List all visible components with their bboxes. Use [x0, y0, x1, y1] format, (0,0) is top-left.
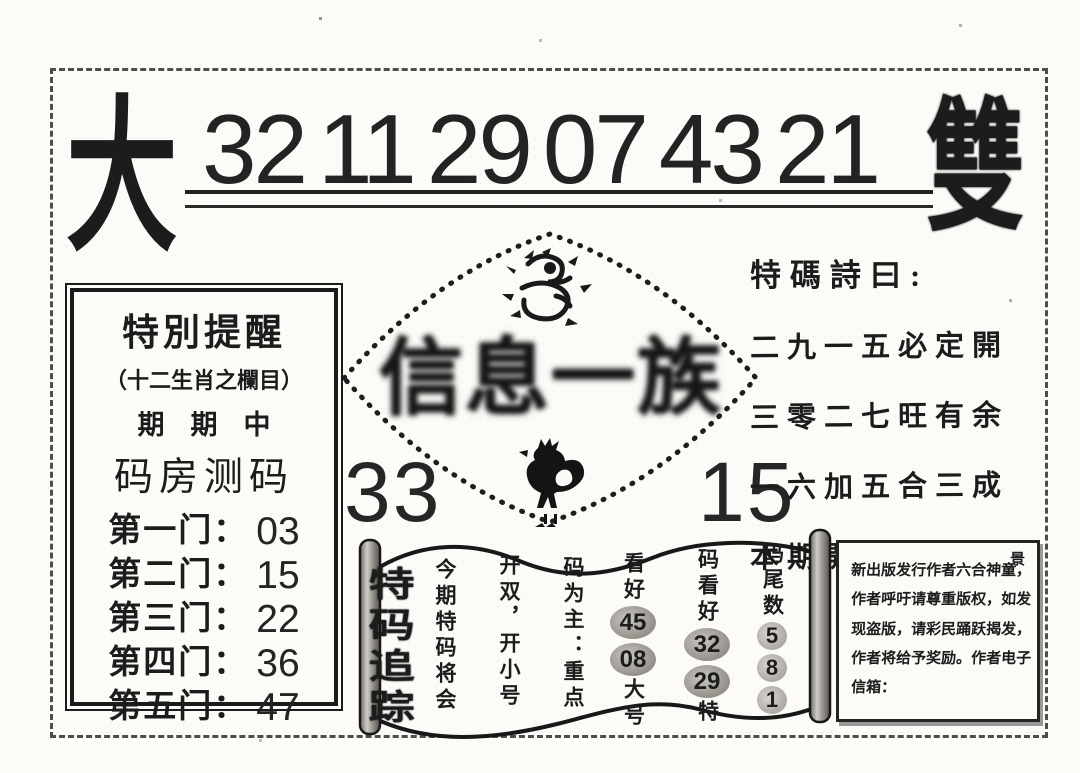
special-alert-box: 特別提醒 （十二生肖之欄目） 期期中 码房测码 第一门： 03 第二门： 15 …: [70, 288, 338, 706]
door-list: 第一门： 03 第二门： 15 第三门： 22 第四门： 36 第五门： 47: [76, 512, 332, 727]
scroll-column: 码看好 32 29 特: [682, 548, 732, 726]
door-number: 22: [256, 600, 299, 639]
scroll-column-text: 码看好: [697, 548, 718, 626]
door-label: 第二门：: [108, 559, 248, 592]
door-label: 第四门：: [108, 647, 248, 680]
poem-line: 二九一五必定開: [750, 321, 1042, 366]
top-number: 21: [775, 100, 878, 198]
top-number: 43: [659, 100, 762, 198]
top-number: 29: [427, 100, 530, 198]
picked-number-chip: 29: [684, 665, 730, 698]
scroll-column: 今期特码将会: [434, 558, 455, 714]
top-number: 11: [318, 100, 414, 198]
picked-number-chip: 08: [610, 643, 656, 676]
photocopy-noise: [0, 0, 1, 1]
brand-title: 信息一族: [356, 334, 746, 422]
lottery-tip-sheet: 大 雙 32 11 29 07 43 21 特別提醒 （十二生肖之欄目） 期期中…: [0, 0, 1080, 773]
scroll-column: 看好 45 08 大号: [608, 552, 658, 730]
door-row: 第二门： 15: [76, 556, 332, 595]
door-label: 第三门：: [108, 603, 248, 636]
scroll-column-text: 今期特码将会: [434, 558, 455, 714]
door-number: 15: [256, 556, 299, 595]
dragon-icon: [498, 248, 594, 335]
door-label: 第五门：: [108, 691, 248, 724]
top-number: 32: [202, 100, 305, 198]
door-number: 47: [256, 688, 299, 727]
poem-line: 三零二七旺有余: [750, 391, 1042, 436]
top-number: 07: [543, 100, 646, 198]
scroll-column-text: 大号: [623, 678, 644, 730]
copyright-notice-box: 景 新出版发行作者六合神童， 作者呼吁请尊重版权，如发 现盗版，请彩民踊跃揭发，…: [836, 540, 1040, 722]
tail-number-chip: 8: [757, 654, 787, 682]
scroll-column-text: 码尾数: [762, 542, 783, 620]
tracking-scroll: 特码追踪 今期特码将会 开双，开小号 码为主：重点 看好 45 08 大号 码看…: [352, 524, 844, 752]
door-row: 第五门： 47: [76, 688, 332, 727]
scroll-column-text: 开双，开小号: [498, 554, 519, 710]
big-char-da: 大: [66, 96, 178, 263]
corner-number-left: 33: [344, 450, 441, 534]
alert-subtitle: （十二生肖之欄目）: [76, 363, 332, 395]
alert-codehouse: 码房测码: [76, 446, 332, 502]
scroll-column: 码为主：重点: [562, 556, 583, 712]
picked-number-chip: 32: [684, 628, 730, 661]
double-rule-bottom: [185, 205, 933, 208]
poem-title: 特碼詩曰:: [750, 250, 1042, 295]
rooster-icon: [514, 430, 586, 533]
scroll-column: 码尾数 5 8 1: [750, 542, 794, 716]
double-rule-top: [185, 190, 933, 194]
scroll-column-text: 看好: [623, 552, 644, 604]
notice-line: 信箱：: [850, 674, 1028, 703]
poem-line: 一六加五合三成: [750, 461, 1042, 506]
notice-line: 现盗版，请彩民踊跃揭发，: [850, 616, 1028, 645]
door-row: 第四门： 36: [76, 644, 332, 683]
alert-every-period: 期期中: [76, 403, 332, 442]
tail-number-chip: 5: [757, 622, 787, 650]
scroll-column-text: 特: [697, 700, 718, 726]
notice-line: 新出版发行作者六合神童，: [850, 557, 1028, 586]
door-row: 第一门： 03: [76, 512, 332, 551]
tail-number-chip: 1: [757, 686, 787, 714]
door-number: 03: [256, 512, 299, 551]
alert-title: 特別提醒: [76, 302, 332, 356]
scroll-column: 开双，开小号: [498, 554, 519, 710]
notice-line: 作者将给予奖励。作者电子: [850, 645, 1028, 674]
scroll-column-text: 码为主：重点: [562, 556, 583, 712]
door-row: 第三门： 22: [76, 600, 332, 639]
scroll-title: 特码追踪: [364, 566, 410, 730]
top-number-row: 32 11 29 07 43 21: [202, 100, 878, 200]
big-char-shuang: 雙: [926, 98, 1025, 242]
door-label: 第一门：: [108, 515, 248, 548]
door-number: 36: [256, 644, 299, 683]
picked-number-chip: 45: [610, 606, 656, 639]
notice-line: 作者呼吁请尊重版权，如发: [850, 586, 1028, 615]
